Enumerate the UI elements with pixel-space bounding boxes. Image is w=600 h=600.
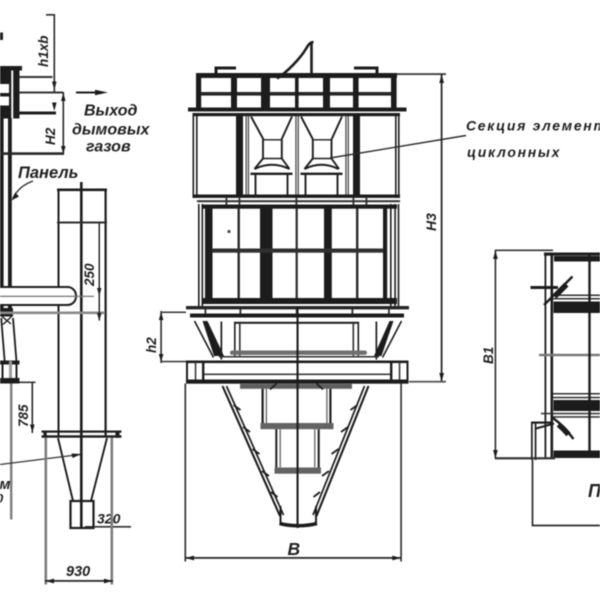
svg-text:В1: В1 — [481, 347, 496, 364]
svg-text:Секция элементов: Секция элементов — [466, 118, 600, 134]
svg-text:785: 785 — [16, 404, 31, 427]
svg-text:В: В — [288, 539, 301, 559]
svg-text:Н3: Н3 — [423, 213, 439, 231]
svg-text:930: 930 — [66, 564, 90, 580]
svg-text:П: П — [588, 481, 600, 501]
svg-text:Выход: Выход — [84, 103, 137, 120]
svg-text:h2: h2 — [144, 337, 159, 353]
svg-text:циклонных: циклонных — [467, 144, 561, 160]
svg-text:h1xb: h1xb — [36, 35, 51, 67]
svg-text:газов: газов — [86, 139, 131, 156]
svg-text:320: 320 — [97, 511, 121, 527]
svg-text:Панель: Панель — [18, 164, 78, 182]
svg-text:0: 0 — [0, 491, 4, 506]
svg-text:250: 250 — [82, 263, 97, 287]
svg-text:дымовых: дымовых — [72, 122, 150, 139]
svg-text:H2: H2 — [43, 127, 58, 145]
